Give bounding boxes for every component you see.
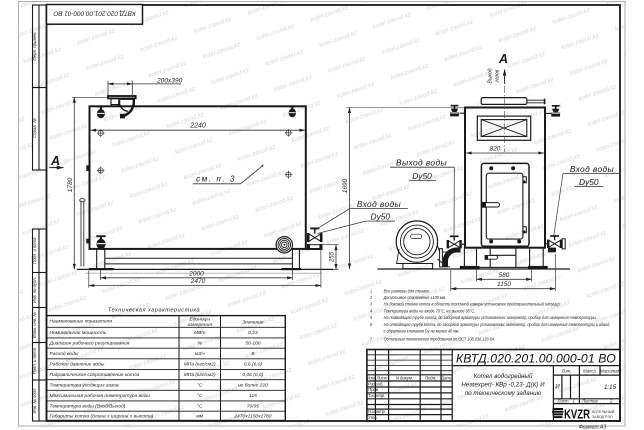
svg-text:4Температура воды на входе 70: 4Температура воды на входе 70°С, на выхо… (370, 308, 475, 314)
svg-text:газов: газов (495, 69, 501, 82)
svg-text:N докум.: N докум. (396, 375, 413, 380)
svg-text:°С: °С (197, 393, 203, 399)
svg-text:Н.контр.: Н.контр. (368, 409, 386, 414)
svg-text:820: 820 (490, 145, 501, 152)
svg-text:Инв. № дубл.: Инв. № дубл. (32, 277, 37, 303)
svg-text:Лист: Лист (557, 399, 569, 404)
svg-text:115: 115 (249, 393, 257, 399)
svg-text:Рабочее давление воды: Рабочее давление воды (50, 362, 105, 368)
svg-text:Масса: Масса (583, 369, 596, 374)
svg-text:Т.контр.: Т.контр. (368, 393, 385, 398)
svg-text:°С: °С (197, 404, 203, 410)
svg-text:Температура уходящих газов: Температура уходящих газов (50, 383, 119, 389)
svg-text:Dy50: Dy50 (371, 212, 391, 222)
svg-text:6На отводящей трубе котла, до: 6На отводящей трубе котла, до запорной а… (370, 321, 610, 327)
svg-text:Листов: Листов (581, 399, 598, 404)
svg-text:Взам. инв. №: Взам. инв. № (32, 312, 37, 338)
svg-text:Выход воды: Выход воды (396, 158, 447, 168)
svg-text:см. п. 3: см. п. 3 (196, 175, 236, 184)
svg-text:Вход воды: Вход воды (357, 199, 401, 209)
svg-text:Формат А3: Формат А3 (579, 425, 607, 430)
svg-text:1690: 1690 (342, 178, 349, 193)
svg-text:Разраб.: Разраб. (368, 381, 384, 386)
svg-text:по техническому заданию: по техническому заданию (465, 390, 542, 397)
svg-text:A: A (50, 154, 60, 168)
svg-text:°С: °С (197, 383, 203, 389)
svg-text:2000: 2000 (188, 270, 204, 277)
svg-text:Справ. №: Справ. № (32, 118, 37, 138)
svg-text:Пров.: Пров. (368, 387, 379, 392)
svg-text:2470: 2470 (190, 278, 206, 285)
svg-text:Котел водогрейный: Котел водогрейный (474, 373, 533, 380)
svg-text:0,6 (6,0): 0,6 (6,0) (244, 362, 263, 368)
svg-text:Максимальная рабочая температу: Максимальная рабочая температура воды (50, 393, 151, 399)
svg-text:Масштаб: Масштаб (600, 369, 621, 374)
svg-text:Вход воды: Вход воды (570, 164, 614, 174)
svg-text:Изм: Изм (367, 375, 375, 380)
svg-text:Температура воды (Вход/Выход): Температура воды (Вход/Выход) (50, 404, 126, 410)
svg-text:1780: 1780 (67, 177, 74, 192)
svg-text:Лист: Лист (375, 375, 387, 380)
svg-text:Heatexpert- КВр -0,23- Д(К) И: Heatexpert- КВр -0,23- Д(К) И (461, 381, 545, 388)
svg-text:7Остальные технические требова: 7Остальные технические требования по ОСТ… (370, 336, 495, 342)
svg-text:200х390: 200х390 (156, 78, 183, 85)
svg-text:Расход воды: Расход воды (50, 351, 79, 357)
svg-text:2470х1150х1780: 2470х1150х1780 (233, 414, 271, 420)
svg-text:50-100: 50-100 (245, 341, 261, 347)
svg-text:Номинальная мощность: Номинальная мощность (50, 330, 108, 336)
svg-text:2240: 2240 (189, 123, 206, 130)
svg-text:КОТЕЛЬНЫЙ: КОТЕЛЬНЫЙ (592, 410, 615, 414)
svg-text:Единицы: Единицы (189, 317, 210, 323)
svg-text:Техническая характеристика: Техническая характеристика (108, 308, 200, 314)
svg-text:Перв. примен.: Перв. примен. (32, 31, 37, 60)
svg-text:Лит.: Лит. (560, 369, 571, 374)
svg-text:Подп. и дата: Подп. и дата (32, 347, 37, 374)
svg-text:70/95: 70/95 (247, 404, 260, 410)
svg-text:Dy50: Dy50 (412, 171, 432, 181)
svg-text:Диапазон рабочего регулировани: Диапазон рабочего регулирования (49, 341, 130, 347)
svg-text:МПа (кгс/см2): МПа (кгс/см2) (184, 362, 216, 368)
svg-text:3На боковой стенке котла в обл: 3На боковой стенке котла в области топоч… (370, 301, 560, 307)
svg-text:A: A (498, 52, 508, 66)
svg-text:МПа (кгс/см2): МПа (кгс/см2) (184, 372, 216, 378)
svg-text:Значение: Значение (242, 320, 264, 326)
svg-text:0,06 (0,6): 0,06 (0,6) (242, 372, 263, 378)
svg-text:Дата: Дата (440, 375, 453, 380)
svg-text:8: 8 (252, 351, 255, 357)
svg-text:Наименование показателя: Наименование показателя (50, 319, 113, 325)
svg-text:КВТД.020.201.00.000-01 ВО: КВТД.020.201.00.000-01 ВО (53, 9, 135, 16)
svg-text:И: И (555, 385, 560, 391)
svg-text:Подп.: Подп. (425, 375, 436, 380)
svg-text:1150: 1150 (497, 281, 511, 288)
svg-text:KVZR: KVZR (564, 408, 590, 422)
svg-text:255: 255 (328, 251, 335, 263)
svg-text:0,23: 0,23 (248, 330, 258, 336)
svg-text:м3/ч: м3/ч (195, 351, 205, 357)
svg-text:Утв.: Утв. (368, 415, 378, 420)
svg-text:мм: мм (196, 415, 203, 420)
svg-text:Выход: Выход (488, 68, 494, 83)
svg-text:Подп. и дата: Подп. и дата (32, 237, 37, 264)
svg-text:МВт: МВт (194, 330, 205, 336)
svg-text:Dy50: Dy50 (579, 177, 599, 187)
svg-text:Габариты котла (длина х ширина: Габариты котла (длина х ширина х высота) (50, 414, 154, 420)
svg-text:580: 580 (499, 272, 510, 279)
svg-text:с обратным клапаном Dу не мен: с обратным клапаном Dу не менее 40 мм. (384, 328, 460, 334)
svg-text:%: % (198, 341, 203, 347)
svg-text:КВТД.020.201.00.000-01 ВО: КВТД.020.201.00.000-01 ВО (456, 351, 616, 365)
svg-text:измерения: измерения (187, 323, 212, 328)
svg-text:ЗАВОД РЭП: ЗАВОД РЭП (592, 415, 613, 419)
svg-text:1:15: 1:15 (604, 384, 617, 391)
svg-text:Гидравлическое сопротивление к: Гидравлическое сопротивление котла (50, 372, 140, 378)
svg-text:Инв. № подл.: Инв. № подл. (32, 388, 37, 414)
svg-text:не более 220: не более 220 (238, 383, 268, 389)
svg-text:5На подводящей трубе котла, д: 5На подводящей трубе котла, до запорной … (370, 315, 597, 321)
